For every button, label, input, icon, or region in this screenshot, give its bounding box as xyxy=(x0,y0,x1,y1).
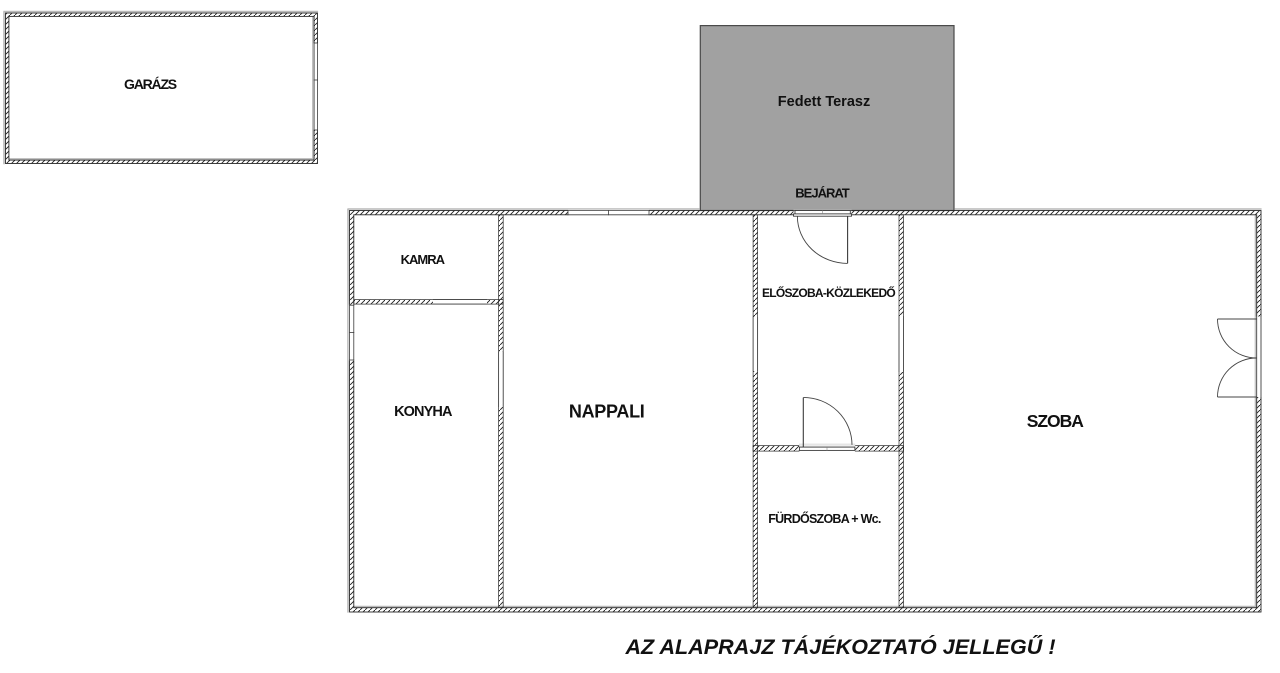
svg-text:FÜRDŐSZOBA + Wc.: FÜRDŐSZOBA + Wc. xyxy=(768,511,881,526)
svg-text:KAMRA: KAMRA xyxy=(401,252,446,267)
svg-text:SZOBA: SZOBA xyxy=(1027,411,1084,431)
svg-text:Fedett Terasz: Fedett Terasz xyxy=(778,94,870,110)
svg-text:AZ ALAPRAJZ TÁJÉKOZTATÓ JELLEG: AZ ALAPRAJZ TÁJÉKOZTATÓ JELLEGŰ ! xyxy=(624,634,1055,659)
svg-text:NAPPALI: NAPPALI xyxy=(569,402,645,422)
svg-text:GARÁZS: GARÁZS xyxy=(124,76,177,92)
svg-text:BEJÁRAT: BEJÁRAT xyxy=(795,186,849,201)
svg-text:ELŐSZOBA-KÖZLEKEDŐ: ELŐSZOBA-KÖZLEKEDŐ xyxy=(762,285,895,300)
svg-text:KONYHA: KONYHA xyxy=(394,404,453,420)
